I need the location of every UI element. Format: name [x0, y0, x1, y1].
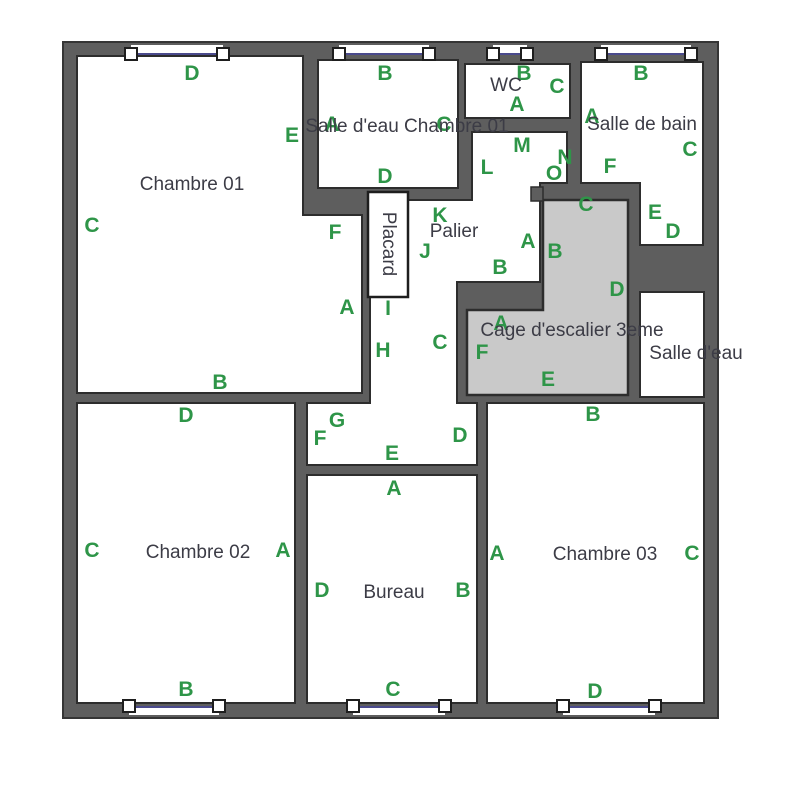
- wall-marker: C: [578, 193, 593, 216]
- wall-marker: A: [489, 542, 504, 565]
- wall-marker: C: [385, 678, 400, 701]
- wall-marker: C: [84, 214, 99, 237]
- room-wc-label: WC: [490, 75, 522, 96]
- wall-marker: A: [520, 230, 535, 253]
- room-chambre01-label: Chambre 01: [140, 174, 245, 195]
- wall-marker: E: [285, 124, 299, 147]
- wall-marker: F: [476, 341, 489, 364]
- room-chambre03-label: Chambre 03: [553, 544, 658, 565]
- wall-marker: A: [339, 296, 354, 319]
- wall-marker: E: [541, 368, 555, 391]
- room-placard-label: Placard: [378, 212, 399, 276]
- wall-marker: D: [178, 404, 193, 427]
- wall-marker: D: [184, 62, 199, 85]
- room-palier-label: Palier: [430, 221, 479, 242]
- wall-marker: C: [682, 138, 697, 161]
- wall-marker: D: [377, 165, 392, 188]
- wall-marker: A: [386, 477, 401, 500]
- wall-marker: D: [314, 579, 329, 602]
- wall-marker: C: [84, 539, 99, 562]
- floor-plan-drawing: D C B E F A B A C D B C A B A C F E D M …: [0, 0, 787, 800]
- wall-marker: D: [665, 220, 680, 243]
- room-salle-de-bain-label: Salle de bain: [587, 114, 697, 135]
- wall-marker: L: [481, 156, 494, 179]
- wall-marker: C: [432, 331, 447, 354]
- wall-marker: F: [314, 427, 327, 450]
- wall-marker: C: [684, 542, 699, 565]
- wall-marker: F: [329, 221, 342, 244]
- room-bureau-label: Bureau: [363, 582, 424, 603]
- wall-marker: B: [585, 403, 600, 426]
- wall-marker: J: [419, 240, 431, 263]
- wall-marker: B: [633, 62, 648, 85]
- wall-marker: E: [648, 201, 662, 224]
- room-salle-eau-ch01-label: Salle d'eau Chambre 01: [305, 116, 508, 137]
- wall-marker: F: [604, 155, 617, 178]
- wall-marker: A: [509, 93, 524, 116]
- wall-marker: H: [375, 339, 390, 362]
- wall-marker: D: [587, 680, 602, 703]
- wall-marker: B: [492, 256, 507, 279]
- wall-marker: O: [546, 162, 562, 185]
- wall-marker: E: [385, 442, 399, 465]
- wall-marker: G: [329, 409, 345, 432]
- floor-plan-page: D C B E F A B A C D B C A B A C F E D M …: [0, 0, 787, 800]
- wall-marker: C: [549, 75, 564, 98]
- wall-marker: D: [452, 424, 467, 447]
- room-salle-eau-label: Salle d'eau: [649, 343, 742, 364]
- wall-marker: B: [212, 371, 227, 394]
- wall-notch: [531, 187, 543, 201]
- wall-marker: I: [385, 297, 391, 320]
- wall-marker: B: [377, 62, 392, 85]
- wall-marker: A: [275, 539, 290, 562]
- room-chambre02-label: Chambre 02: [146, 542, 251, 563]
- wall-marker: B: [178, 678, 193, 701]
- wall-marker: B: [455, 579, 470, 602]
- room-cage-escalier-label: Cage d'escalier 3eme: [480, 320, 663, 341]
- wall-marker: M: [513, 134, 531, 157]
- wall-marker: D: [609, 278, 624, 301]
- wall-marker: B: [547, 240, 562, 263]
